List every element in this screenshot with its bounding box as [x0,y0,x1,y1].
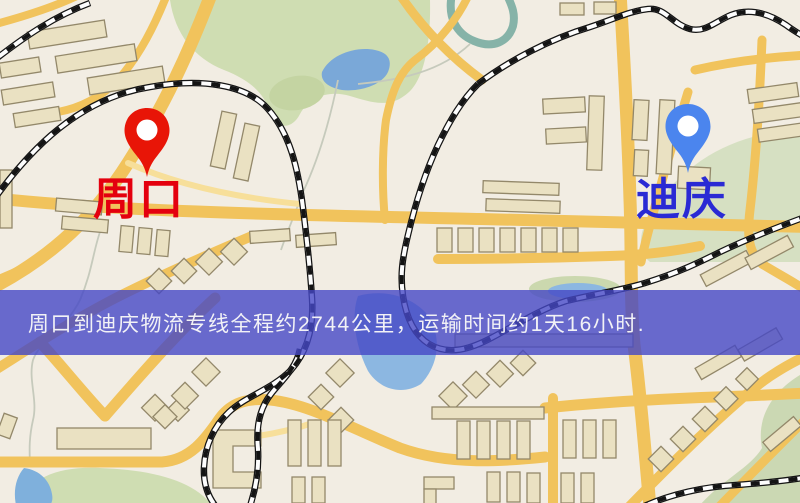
map-pin-icon [663,103,713,175]
destination-city-label: 迪庆 [636,178,728,222]
pin-body [125,108,170,177]
route-info-banner: 周口到迪庆物流专线全程约2744公里，运输时间约1天16小时. [0,290,800,355]
pin-body [666,104,711,173]
origin-pin-marker[interactable] [122,107,172,179]
map-canvas [0,0,800,503]
origin-city-label: 周口 [93,178,185,222]
map-screenshot: 周口 迪庆 周口到迪庆物流专线全程约2744公里，运输时间约1天16小时. [0,0,800,503]
pin-hole [137,120,158,141]
map-pin-icon [122,107,172,179]
pin-hole [678,116,699,137]
destination-pin-marker[interactable] [663,103,713,175]
route-info-text: 周口到迪庆物流专线全程约2744公里，运输时间约1天16小时. [28,308,645,338]
